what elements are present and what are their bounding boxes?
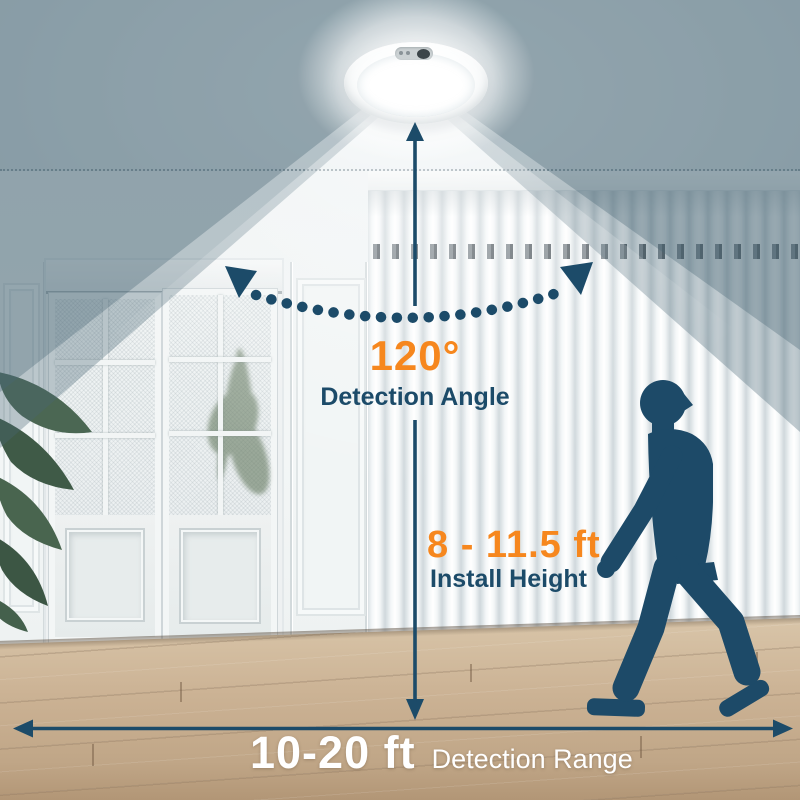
angle-arrow-right-icon [560,262,593,295]
down-arrowhead-icon [406,699,424,720]
detection-range-value: 10-20 ft [250,727,416,779]
detection-angle-value: 120° [330,332,500,380]
detection-angle-dotted-arc [256,292,560,318]
product-infographic: 120° Detection Angle 8 - 11.5 ft Install… [0,0,800,800]
install-height-value: 8 - 11.5 ft [427,524,601,567]
detection-angle-label: Detection Angle [295,383,535,412]
detection-range-label: Detection Range [432,744,633,775]
install-height-label: Install Height [430,565,587,594]
detection-range: 10-20 ft Detection Range [250,727,633,779]
